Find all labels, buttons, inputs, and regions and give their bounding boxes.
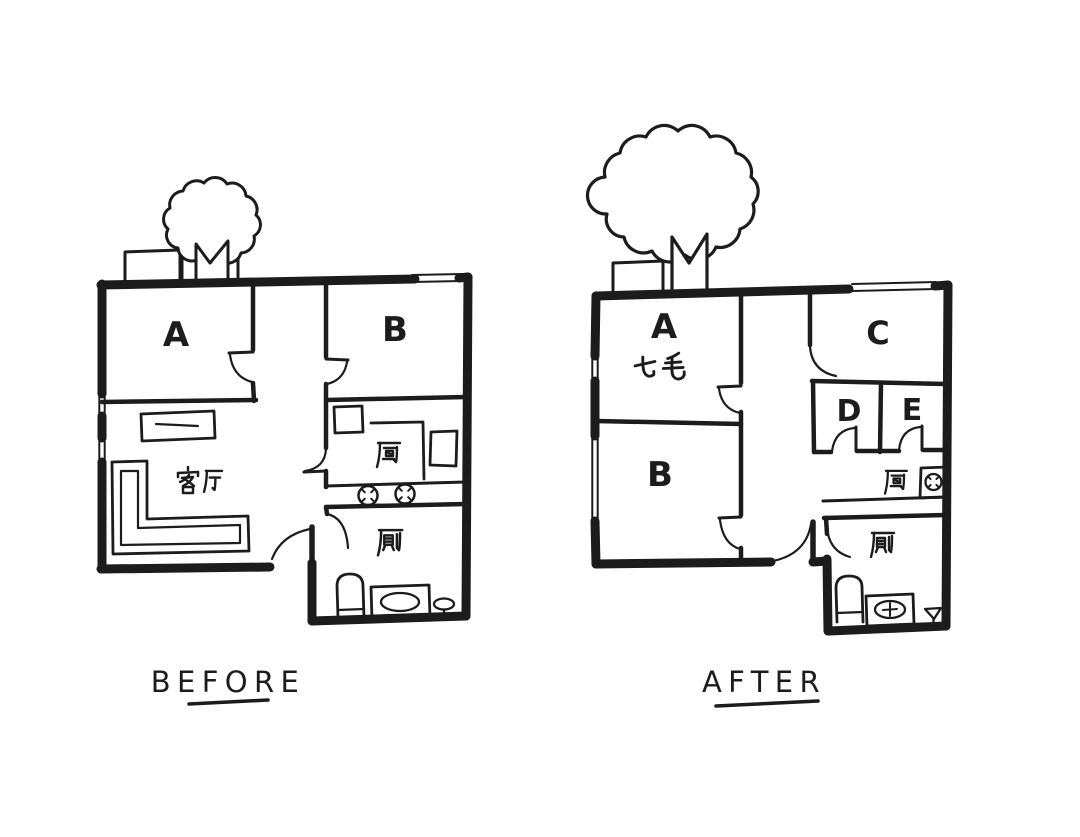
door-swing-icon <box>719 389 740 413</box>
bathroom-label: 厕 <box>870 531 896 561</box>
door-swing-icon <box>229 352 253 353</box>
door-swing-icon <box>327 362 347 384</box>
room-label-a: A <box>651 307 678 347</box>
door-swing-icon <box>327 514 348 548</box>
svg-text:AFTER: AFTER <box>702 665 826 699</box>
floorplan-sketch: A B 客厅 厨 厕 BEFORE <box>0 0 1080 837</box>
kitchen-label: 厨 <box>376 439 402 469</box>
room-label-a: A <box>163 315 190 355</box>
kitchen-label: 厨 <box>883 468 909 498</box>
bathroom-label: 厕 <box>378 530 404 560</box>
cat-name-annotation: 七毛 <box>632 353 684 385</box>
door-swing-icon <box>832 428 854 451</box>
before-caption: BEFORE <box>151 665 305 704</box>
tv-cabinet-detail <box>156 424 198 426</box>
door-swing-icon <box>326 359 348 360</box>
before-windows <box>99 274 462 462</box>
before-furniture <box>112 406 457 620</box>
before-outer-walls <box>101 277 468 621</box>
entrance-door-swing <box>272 529 310 559</box>
before-caption-underline <box>189 700 268 704</box>
room-label-d: D <box>837 394 862 429</box>
room-label-c: C <box>866 314 889 352</box>
door-swing-icon <box>230 355 252 382</box>
after-caption: AFTER <box>702 665 826 706</box>
sketch-page: A B 客厅 厨 厕 BEFORE <box>0 0 1080 837</box>
toilet-icon <box>836 576 863 622</box>
room-label-b: B <box>647 455 673 495</box>
svg-text:BEFORE: BEFORE <box>151 665 305 699</box>
before-door-swings <box>229 352 348 563</box>
after-floorplan: A B C D E 七毛 厨 厕 AFTER <box>587 125 948 706</box>
vanity-sink-icon <box>866 594 914 626</box>
stove-burners-icon <box>359 485 415 506</box>
door-swing-icon <box>719 517 741 518</box>
living-room-label: 客厅 <box>174 467 226 499</box>
door-swing-icon <box>899 427 920 450</box>
fridge-icon <box>430 431 457 466</box>
door-swing-icon <box>720 520 740 549</box>
entrance-door-swing <box>773 524 811 561</box>
room-label-e: E <box>902 393 923 428</box>
door-swing-icon <box>810 347 836 376</box>
before-interior-walls <box>102 280 466 514</box>
before-floorplan: A B 客厅 厨 厕 BEFORE <box>99 177 468 704</box>
door-swing-icon <box>305 449 326 471</box>
door-swing-icon <box>718 386 741 387</box>
after-caption-underline <box>716 701 818 706</box>
toilet-icon <box>337 574 364 618</box>
kitchen-sink-icon <box>334 406 363 433</box>
room-label-b: B <box>382 310 408 350</box>
after-interior-walls <box>596 291 946 562</box>
door-swing-icon <box>828 534 850 557</box>
before-tree-icon <box>164 177 261 285</box>
